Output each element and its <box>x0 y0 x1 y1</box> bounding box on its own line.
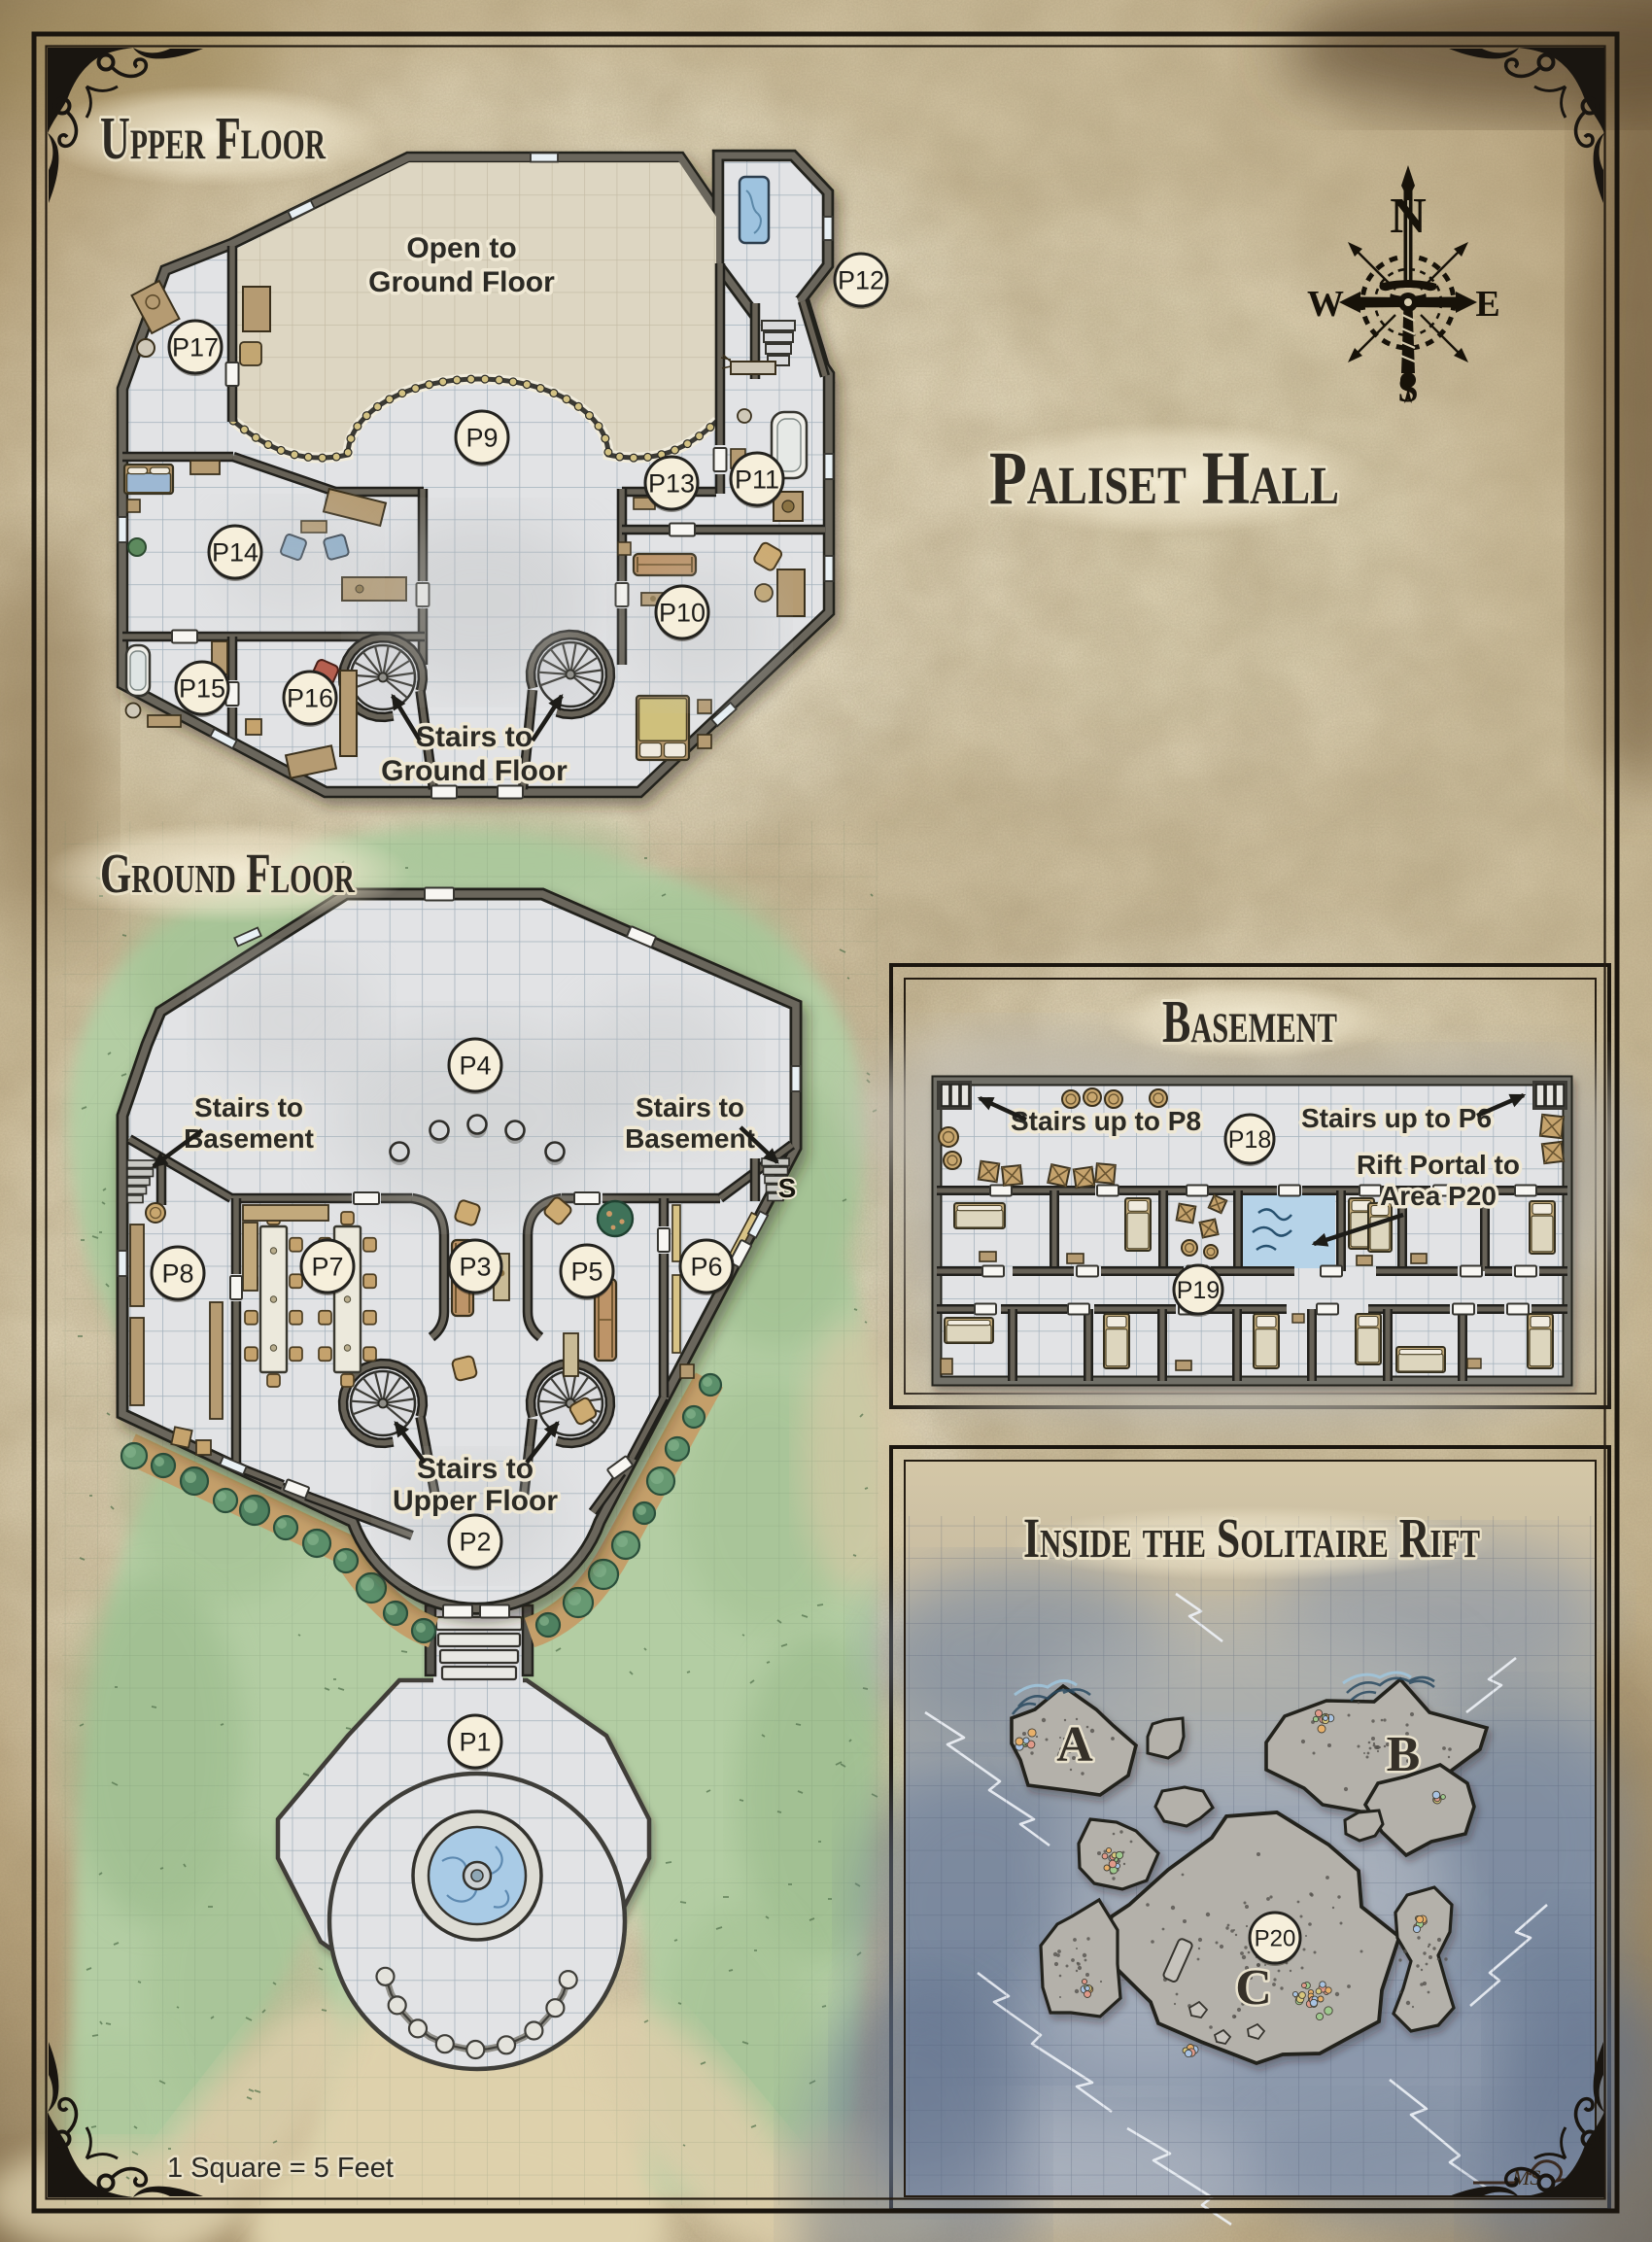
svg-text:Paliset Hall: Paliset Hall <box>989 435 1339 520</box>
svg-text:Stairs to: Stairs to <box>636 1092 744 1122</box>
svg-text:P6: P6 <box>690 1253 722 1282</box>
svg-text:1 Square = 5 Feet: 1 Square = 5 Feet <box>167 2153 394 2184</box>
svg-text:C: C <box>1235 1960 1272 2016</box>
svg-text:P4: P4 <box>459 1052 491 1081</box>
svg-text:A: A <box>1056 1717 1093 1773</box>
svg-text:P1: P1 <box>459 1728 491 1757</box>
svg-text:Stairs to: Stairs to <box>417 1453 533 1485</box>
svg-text:P2: P2 <box>459 1528 491 1557</box>
svg-text:Ground Floor: Ground Floor <box>368 266 555 298</box>
svg-text:P19: P19 <box>1177 1277 1220 1304</box>
svg-text:Upper Floor: Upper Floor <box>393 1485 558 1517</box>
svg-text:Basement: Basement <box>184 1123 314 1154</box>
svg-text:Basement: Basement <box>625 1123 755 1154</box>
svg-text:N: N <box>1390 189 1427 244</box>
svg-text:P10: P10 <box>659 599 706 628</box>
svg-text:P7: P7 <box>311 1253 343 1282</box>
svg-text:Area P20: Area P20 <box>1380 1181 1497 1211</box>
svg-text:Inside the Solitaire Rift: Inside the Solitaire Rift <box>1023 1506 1480 1569</box>
svg-text:Open to: Open to <box>406 232 516 264</box>
svg-text:P12: P12 <box>838 266 884 295</box>
svg-text:P15: P15 <box>179 674 225 704</box>
svg-text:P11: P11 <box>735 466 779 495</box>
svg-text:P5: P5 <box>570 1258 602 1287</box>
svg-text:W: W <box>1307 284 1344 325</box>
svg-text:Ground Floor: Ground Floor <box>381 755 568 787</box>
svg-text:P8: P8 <box>161 1259 193 1289</box>
svg-text:S: S <box>1397 369 1418 410</box>
svg-text:P13: P13 <box>648 469 695 499</box>
svg-text:Stairs to: Stairs to <box>416 721 533 753</box>
svg-text:Ground Floor: Ground Floor <box>100 842 355 905</box>
svg-text:P9: P9 <box>465 424 498 453</box>
svg-text:S: S <box>778 1173 797 1203</box>
svg-text:P18: P18 <box>1228 1126 1271 1154</box>
svg-text:P16: P16 <box>287 684 333 713</box>
svg-text:Basement: Basement <box>1162 989 1337 1055</box>
svg-text:Stairs up to P8: Stairs up to P8 <box>1011 1106 1201 1136</box>
svg-text:P3: P3 <box>459 1253 491 1282</box>
svg-text:B: B <box>1387 1727 1421 1782</box>
svg-text:Stairs to: Stairs to <box>194 1092 303 1122</box>
svg-text:P20: P20 <box>1255 1926 1296 1952</box>
svg-text:Rift Portal to: Rift Portal to <box>1357 1150 1520 1180</box>
svg-text:P14: P14 <box>212 538 258 568</box>
svg-text:Stairs up to P6: Stairs up to P6 <box>1301 1103 1492 1133</box>
svg-text:Upper Floor: Upper Floor <box>100 106 327 172</box>
svg-text:E: E <box>1475 284 1499 325</box>
svg-text:P17: P17 <box>172 333 219 362</box>
